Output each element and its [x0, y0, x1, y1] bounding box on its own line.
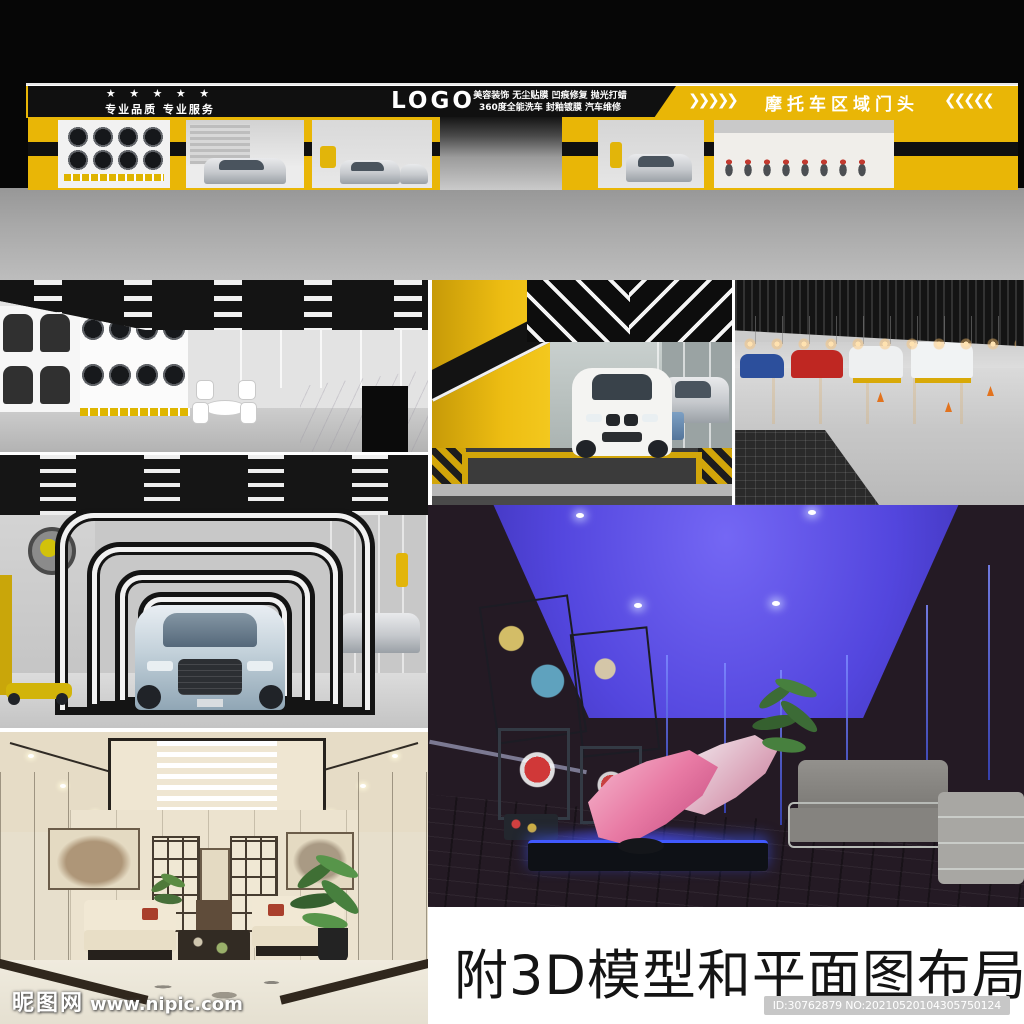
- white-car-shape: [626, 154, 692, 182]
- chair-shape: [238, 380, 256, 400]
- stock-preview-collage: ★ ★ ★ ★ ★ 专业品质 专业服务 LOGO 美容装饰 无尘贴膜 凹痕修复 …: [0, 0, 1024, 1024]
- services-line-1: 美容装饰 无尘贴膜 凹痕修复 抛光打蜡: [436, 90, 664, 102]
- yellow-lift-ramp: [853, 378, 901, 383]
- car-wash-tunnel-panel: [0, 455, 428, 728]
- gray-sofa: [788, 750, 1024, 890]
- banner-services: 美容装饰 无尘贴膜 凹痕修复 抛光打蜡 360度全能洗车 封釉镀膜 汽车维修: [436, 90, 664, 114]
- white-suv-shape: [849, 346, 903, 378]
- chair-shape: [196, 380, 214, 400]
- dark-doorway: [362, 386, 408, 452]
- silver-car-shape: [204, 158, 286, 184]
- grille-kidney: [624, 414, 638, 426]
- chair-shape: [240, 402, 257, 424]
- equipment-shape: [610, 142, 622, 168]
- service-bay-equipment: [312, 120, 432, 188]
- sofa-seat: [84, 930, 176, 952]
- arcade-simulators: [468, 600, 778, 880]
- wheel-icon: [259, 685, 283, 709]
- blue-car-shape: [740, 354, 784, 378]
- vr-game-room-panel: [428, 505, 1024, 907]
- leaf: [154, 893, 183, 905]
- red-pillow: [268, 904, 284, 916]
- license-plate: [197, 699, 223, 707]
- game-poster-marquee: [570, 626, 661, 757]
- chevron-left-icons: ❮❮❮❮❮: [944, 91, 992, 109]
- caption-area: 附3D模型和平面图布局 ID:30762879 NO:2021052010430…: [428, 907, 1024, 1024]
- wheel-icon: [576, 440, 596, 458]
- lift-garage-panel: [735, 280, 1024, 505]
- watermark-logo: 昵图网: [12, 991, 84, 1016]
- seat-display-wall: [0, 306, 80, 412]
- floor-reflections: [750, 376, 1005, 424]
- banner-black-band: ★ ★ ★ ★ ★ 专业品质 专业服务 LOGO 美容装饰 无尘贴膜 凹痕修复 …: [28, 86, 676, 118]
- walkway-band: [432, 484, 732, 496]
- image-id-badge: ID:30762879 NO:20210520104305750124: [764, 996, 1010, 1015]
- car-shape: [340, 160, 400, 184]
- storefront-facade: ★ ★ ★ ★ ★ 专业品质 专业服务 LOGO 美容装饰 无尘贴膜 凹痕修复 …: [26, 83, 1018, 190]
- downlight-icon: [392, 754, 398, 758]
- car-seat-icon: [40, 366, 70, 404]
- floor-jack-icon: [6, 683, 72, 699]
- right-wall: [358, 772, 428, 972]
- tire-display-bay: [58, 120, 170, 188]
- star-rating-icons: ★ ★ ★ ★ ★: [70, 87, 250, 100]
- wheel-rack-icon: [66, 126, 164, 172]
- lounge-room-panel: [0, 732, 428, 1024]
- headlight: [586, 414, 602, 422]
- car-window: [638, 156, 674, 167]
- jack-wheel: [56, 693, 68, 705]
- storefront-banner: ★ ★ ★ ★ ★ 专业品质 专业服务 LOGO 美容装饰 无尘贴膜 凹痕修复 …: [26, 85, 1018, 118]
- product-shelf: [64, 174, 164, 181]
- car-window: [351, 162, 384, 171]
- equipment-shape: [320, 146, 336, 168]
- white-bmw-car: [572, 368, 672, 460]
- headlight: [247, 661, 273, 671]
- open-corridor-bay: [440, 117, 562, 190]
- simulator-wheel: [618, 838, 664, 854]
- yellow-lift-post: [0, 575, 12, 695]
- windshield: [163, 613, 257, 647]
- grille: [178, 659, 242, 695]
- storefront-floor: [0, 188, 1024, 280]
- downlight-icon: [28, 754, 34, 758]
- large-plant: [290, 860, 362, 964]
- headlight: [642, 414, 658, 422]
- yellow-equipment: [396, 553, 408, 587]
- service-bay-panel: [432, 280, 732, 505]
- hazard-stripes: [432, 448, 466, 484]
- floor-edge: [432, 496, 732, 505]
- sofa-module: [938, 792, 1024, 884]
- car-seat-icon: [3, 314, 33, 352]
- chevron-stripes-left: [527, 280, 630, 342]
- motorcycle-row-icon: [720, 154, 870, 182]
- headlight: [147, 661, 173, 671]
- small-plant: [148, 876, 188, 920]
- reel-center: [40, 539, 58, 557]
- site-watermark: 昵图网www.nipic.com: [12, 985, 243, 1017]
- slatted-ceiling-lights: [0, 455, 428, 515]
- storefront-body: [28, 117, 1018, 190]
- service-bay-white-car: [598, 120, 704, 188]
- wall-art-scroll: [200, 848, 230, 904]
- plant-pot: [318, 928, 348, 962]
- led-strip: [988, 565, 990, 780]
- car-window: [675, 381, 711, 398]
- banner-tagline: 专业品质 专业服务: [70, 101, 250, 117]
- hazard-stripes: [698, 448, 732, 484]
- sofa-base: [88, 950, 172, 960]
- wheel-icon: [648, 440, 668, 458]
- tire-shop-reception-panel: [0, 280, 428, 452]
- motorcycle-showroom-bay: [714, 120, 894, 188]
- pale-blue-car: [135, 605, 285, 710]
- pendant-lamps: [743, 338, 1016, 350]
- yellow-lift-ramp: [915, 378, 971, 383]
- services-line-2: 360度全能洗车 封釉镀膜 汽车维修: [436, 102, 664, 114]
- ceiling-light-panel: [108, 738, 326, 818]
- chrome-frame: [788, 802, 958, 848]
- chair-shape: [192, 402, 209, 424]
- chevron-stripes-right: [629, 280, 732, 342]
- red-car-shape: [791, 350, 843, 378]
- moto-area-title: 摩托车区域门头: [742, 90, 942, 115]
- grille-kidney: [606, 414, 620, 426]
- car-seat-icon: [3, 366, 33, 404]
- car-window: [219, 160, 264, 170]
- lower-intake: [602, 432, 642, 442]
- car-seat-icon: [40, 314, 70, 352]
- windshield: [592, 374, 652, 400]
- yellow-product-row: [80, 408, 190, 416]
- chevron-ceiling: [527, 280, 732, 342]
- storefront-render-panel: ★ ★ ★ ★ ★ 专业品质 专业服务 LOGO 美容装饰 无尘贴膜 凹痕修复 …: [0, 0, 1024, 280]
- service-bay-silver-car: [186, 120, 304, 188]
- console-cabinet: [196, 900, 232, 930]
- watermark-url: www.nipic.com: [90, 994, 243, 1015]
- downlight-icon: [576, 513, 584, 518]
- game-screen: [498, 728, 570, 820]
- game-poster-marquee: [479, 594, 587, 744]
- landscape-painting: [48, 828, 140, 890]
- showroom-ceiling-band: [714, 120, 894, 133]
- jack-wheel: [8, 693, 20, 705]
- car-shape: [400, 164, 428, 184]
- wheel-icon: [137, 685, 161, 709]
- downlight-icon: [808, 510, 816, 515]
- chevron-right-icons: ❯❯❯❯❯: [688, 91, 736, 109]
